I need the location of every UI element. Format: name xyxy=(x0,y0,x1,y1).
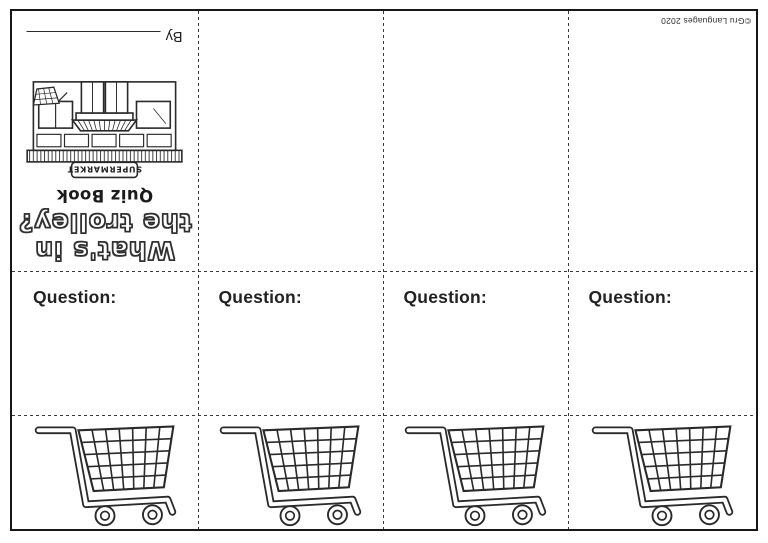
trolley-wheels xyxy=(466,505,532,525)
trolley-cell-3 xyxy=(383,416,568,530)
trolley-cell-2 xyxy=(198,416,383,530)
cover-cell: What's in the trolley? Quiz Book xyxy=(12,11,198,271)
question-label: Question: xyxy=(33,287,116,307)
byline: By xyxy=(27,29,183,44)
storefront-window-left xyxy=(137,101,171,128)
cover-title-line2: the trolley? xyxy=(18,209,192,237)
trolley-wheels xyxy=(95,505,161,525)
storefront-fascia xyxy=(27,150,182,162)
shopping-trolley-icon xyxy=(586,417,738,529)
cover-subtitle: Quiz Book xyxy=(56,186,153,205)
question-cell-1: Question: xyxy=(12,272,198,415)
worksheet-page: What's in the trolley? Quiz Book xyxy=(10,9,758,531)
question-cell-2: Question: xyxy=(198,272,383,415)
by-label: By xyxy=(166,29,183,44)
question-label: Question: xyxy=(404,287,487,307)
question-cell-3: Question: xyxy=(383,272,568,415)
storefront-sign-text: SUPERMARKET xyxy=(67,164,142,173)
copyright-text: ©Gru Languages 2020 xyxy=(661,16,751,26)
question-cell-4: Question: xyxy=(568,272,757,415)
by-write-line xyxy=(27,31,161,32)
blank-cell-top-right: ©Gru Languages 2020 xyxy=(568,11,757,271)
question-label: Question: xyxy=(589,287,672,307)
trolley-cell-4 xyxy=(568,416,757,530)
cover-content-rotated: What's in the trolley? Quiz Book xyxy=(12,11,198,271)
supermarket-storefront-icon: SUPERMARKET xyxy=(25,79,185,179)
shopping-trolley-icon xyxy=(399,417,551,529)
shopping-trolley-icon xyxy=(29,417,181,529)
question-label: Question: xyxy=(219,287,302,307)
trolley-cell-1 xyxy=(12,416,198,530)
cover-title-line1: What's in xyxy=(34,237,175,265)
shopping-trolley-icon xyxy=(214,417,366,529)
supermarket-illustration-wrap: SUPERMARKET xyxy=(25,74,185,179)
trolley-wheels xyxy=(281,505,347,525)
trolley-wheels xyxy=(652,505,718,525)
